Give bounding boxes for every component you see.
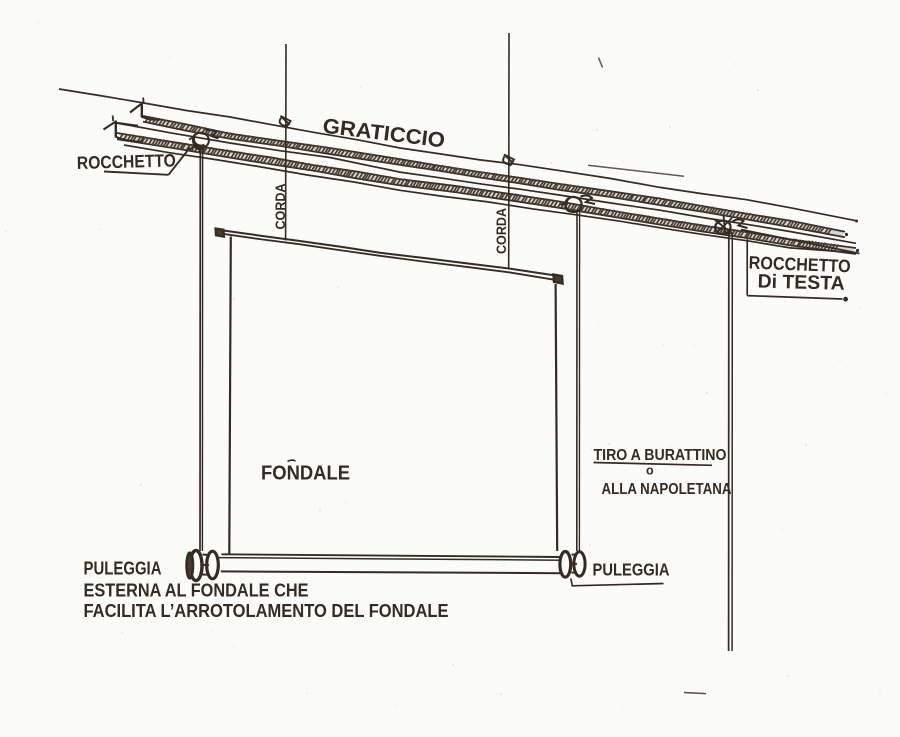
svg-text:CORDA: CORDA <box>494 208 509 254</box>
svg-text:ALLA NAPOLETANA: ALLA NAPOLETANA <box>602 481 732 498</box>
svg-text:CORDA: CORDA <box>273 183 288 229</box>
svg-text:ROCCHETTO: ROCCHETTO <box>77 150 176 173</box>
svg-text:PULEGGIA: PULEGGIA <box>593 560 670 580</box>
svg-text:PULEGGIA: PULEGGIA <box>84 559 162 579</box>
svg-text:o: o <box>646 464 654 478</box>
svg-text:FACILITA L’ARROTOLAMENTO DEL F: FACILITA L’ARROTOLAMENTO DEL FONDALE <box>84 600 449 621</box>
svg-text:TIRO A BURATTINO: TIRO A BURATTINO <box>594 447 727 464</box>
svg-text:FONDALE: FONDALE <box>261 463 350 485</box>
svg-text:Di TESTA: Di TESTA <box>757 271 845 295</box>
svg-text:ESTERNA AL FONDALE CHE: ESTERNA AL FONDALE CHE <box>84 580 309 601</box>
